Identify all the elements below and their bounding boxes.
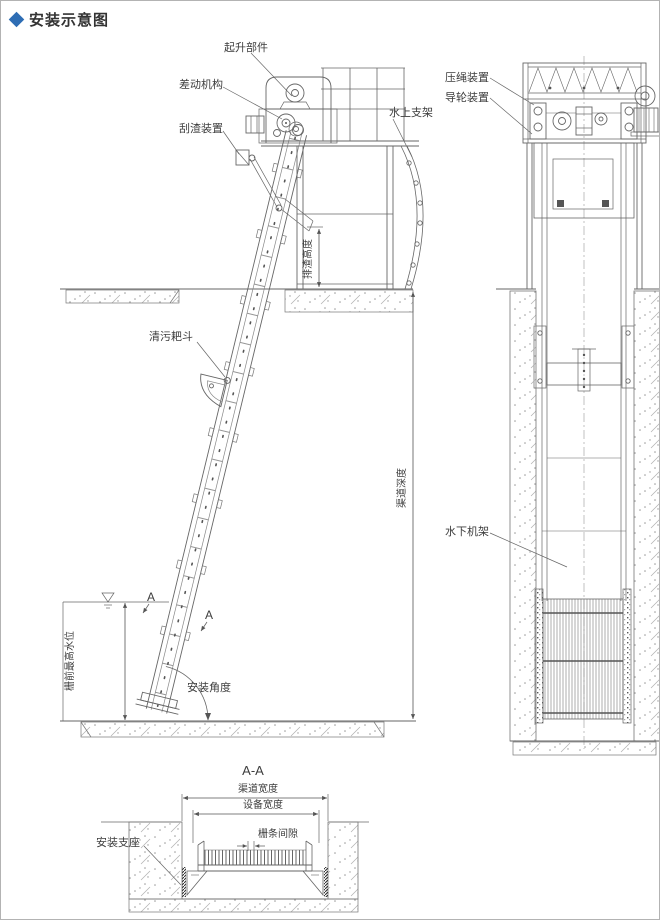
label-water-support: 水上支架 — [389, 106, 433, 119]
dim-channel-depth: 渠道深度 — [395, 468, 408, 508]
dim-equipment-width-line — [193, 810, 319, 843]
dim-max-water-level: 栅前最高水位 — [63, 631, 76, 691]
label-mount-base: 安装支座 — [96, 835, 140, 849]
curved-strut — [401, 146, 423, 289]
label-scraper: 刮渣装置 — [179, 121, 223, 135]
railing — [321, 68, 405, 141]
right-head-frame — [523, 63, 660, 289]
section-screen-assembly — [182, 841, 328, 897]
label-underwater-frame: 水下机架 — [445, 524, 489, 538]
differential-gears — [274, 114, 304, 137]
dim-bar-gap: 栅条间隙 — [258, 827, 298, 840]
label-rope-press: 压绳装置 — [445, 70, 489, 84]
label-rake-bucket: 清污耙斗 — [149, 330, 193, 343]
dim-bar-gap-marks — [237, 841, 265, 851]
dim-equipment-width: 设备宽度 — [243, 798, 283, 811]
label-differential: 差动机构 — [179, 77, 223, 91]
section-aa — [101, 794, 369, 912]
left-view — [60, 53, 423, 737]
section-title: A-A — [242, 763, 264, 778]
label-install-angle: 安装角度 — [187, 680, 231, 694]
underwater-bar-screen — [535, 589, 631, 723]
label-hoist: 起升部件 — [224, 40, 268, 54]
section-marker-a-2: A — [205, 608, 213, 622]
installation-diagram: 起升部件 差动机构 刮渣装置 水上支架 清污耙斗 安装角度 排渣高度 栅前最高水… — [1, 1, 660, 920]
inclined-screen-band — [121, 124, 317, 716]
motor — [631, 86, 660, 136]
left-view-leaders — [197, 53, 412, 377]
section-marker-a-1: A — [147, 590, 155, 604]
drive-machinery — [546, 107, 621, 135]
label-guide-wheel: 导轮装置 — [445, 90, 489, 104]
dim-channel-width: 渠道宽度 — [238, 782, 278, 795]
dim-discharge-height: 排渣高度 — [301, 239, 314, 279]
rope-press-bracket — [530, 103, 546, 139]
section-walls — [101, 822, 369, 912]
page: 安装示意图 — [0, 0, 660, 920]
right-view — [490, 56, 660, 755]
